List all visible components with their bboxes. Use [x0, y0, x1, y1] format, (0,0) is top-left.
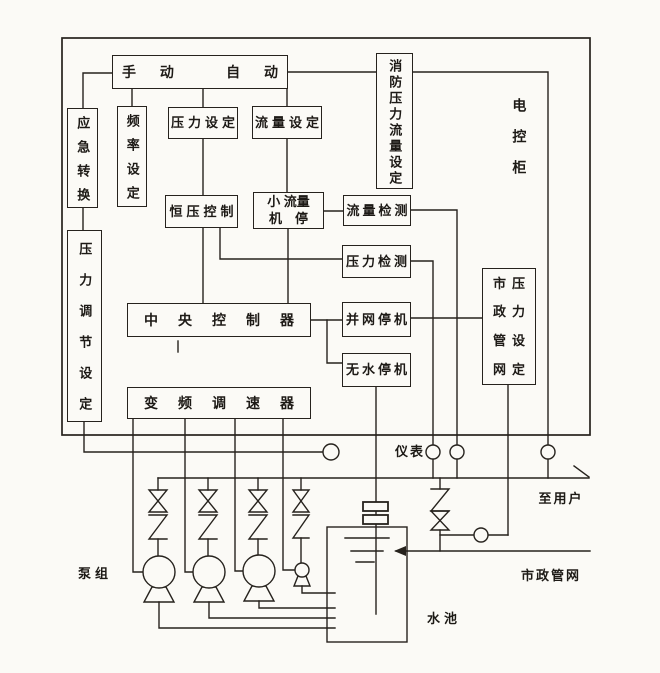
gauge-icon: [541, 445, 555, 459]
pressure-detection-box: 压力检测: [342, 245, 411, 278]
vfd-box: 变频调速器: [127, 387, 311, 419]
check-valve-icon: [199, 515, 217, 539]
level-sensor-electrode: [363, 502, 388, 511]
small-flow-stop-box: 小 流量 机 停: [253, 192, 324, 229]
butterfly-valve-icon: [249, 490, 267, 512]
municipal-network-label: 市政管网: [515, 567, 585, 584]
butterfly-valve-icon: [431, 511, 449, 530]
pressure-regulation-setting-box: 压力调节设定: [67, 230, 102, 422]
municipal-network-pressure-setting-box: 市压 政力 管设 网定: [482, 268, 536, 385]
fire-pressure-flow-setting-box: 消防压力流量设定: [376, 53, 413, 189]
gauge-icon: [323, 444, 339, 460]
check-valve-icon: [431, 489, 449, 511]
check-valve-icon: [149, 515, 167, 539]
inlet-arrow: [394, 546, 406, 556]
constant-pressure-control-box: 恒压控制: [165, 195, 238, 228]
pump-2: [193, 556, 225, 588]
pump-branch-2: [193, 478, 225, 602]
pump-cone: [194, 587, 224, 602]
tank-label: 水池: [421, 610, 463, 627]
butterfly-valve-icon: [199, 490, 217, 512]
pump-branch-3: [243, 478, 275, 601]
manual-label: 手 动: [122, 64, 184, 81]
to-users-arrow: [574, 466, 589, 477]
pump-1: [143, 556, 175, 588]
butterfly-valve-icon: [293, 490, 309, 512]
gauge-icon: [426, 445, 440, 459]
frequency-setting-box: 频率设定: [117, 106, 147, 207]
grid-connect-stop-box: 并网停机: [342, 302, 411, 337]
manual-auto-box: 手 动 自 动: [112, 55, 288, 89]
pump-cone: [144, 587, 174, 602]
flow-setting-box: 流量设定: [252, 106, 322, 139]
to-users-pipe: [158, 466, 589, 478]
pressure-setting-box: 压力设定: [168, 107, 238, 139]
pump-cone: [244, 586, 274, 601]
water-supply-control-diagram: 手 动 自 动 应急转换 频率设定 压力设定 流量设定 消防压力流量设定 恒压控…: [0, 0, 660, 673]
flow-detection-box: 流量检测: [343, 195, 411, 226]
gauge-icon: [474, 528, 488, 542]
to-users-label: 至用户: [530, 490, 590, 507]
auto-label: 自 动: [226, 64, 288, 81]
pump-branch-1: [143, 478, 175, 602]
cabinet-label: 电控柜: [504, 88, 534, 184]
central-controller-box: 中央控制器: [127, 303, 311, 337]
pump-group-label: 泵组: [72, 565, 114, 582]
no-water-stop-box: 无水停机: [342, 353, 411, 387]
butterfly-valve-icon: [149, 490, 167, 512]
gauge-icon: [450, 445, 464, 459]
check-valve-icon: [293, 515, 309, 538]
pump-suction-lines: [159, 586, 335, 628]
water-tank: [327, 502, 407, 642]
instruments-label: 仪表: [391, 444, 427, 460]
pump-branch-4: [293, 478, 310, 586]
check-valve-icon: [249, 515, 267, 539]
pump-4: [295, 563, 309, 577]
pump-3: [243, 555, 275, 587]
emergency-switch-box: 应急转换: [67, 108, 98, 208]
level-sensor-electrode: [363, 515, 388, 524]
